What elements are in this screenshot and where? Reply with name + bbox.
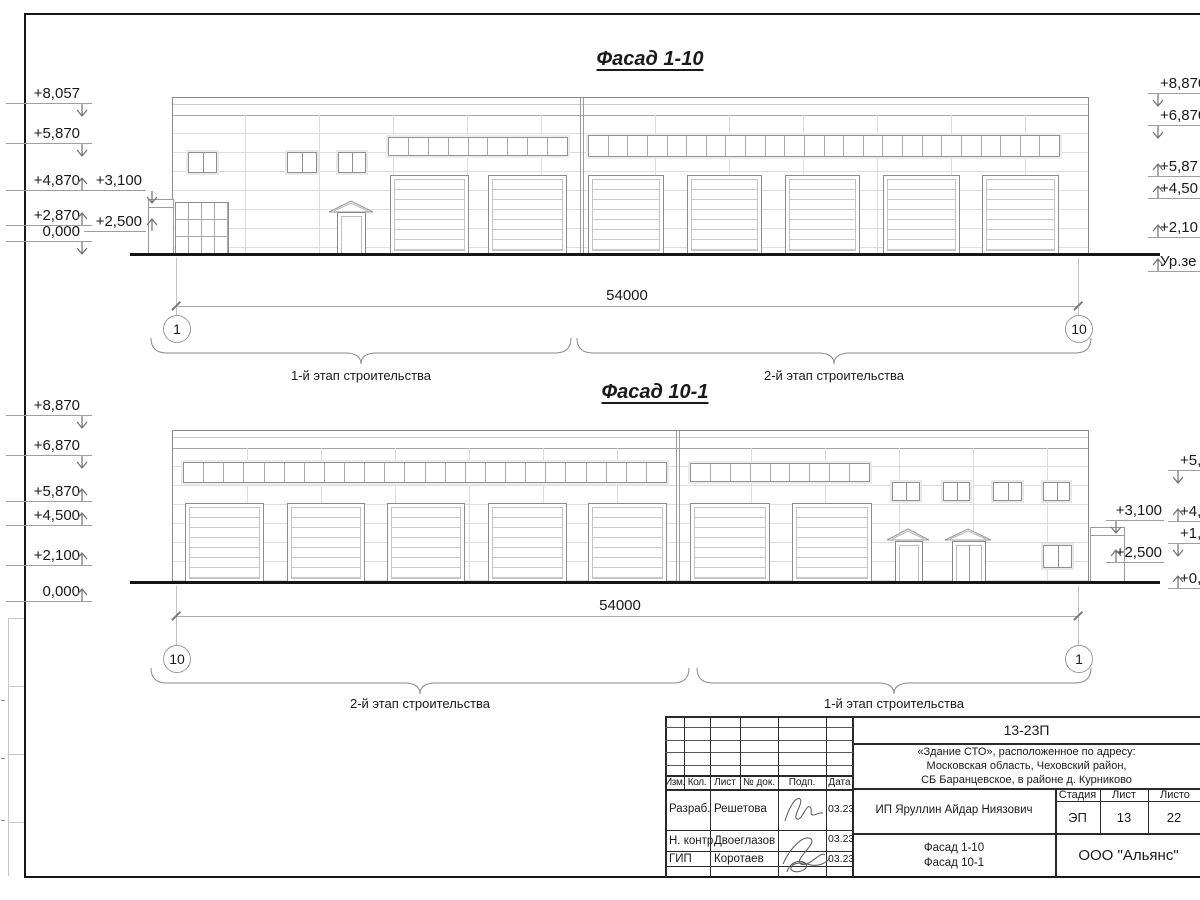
sheets-value: 22 — [1148, 810, 1200, 825]
window-pane — [1021, 136, 1041, 156]
gable-canopy-icon — [886, 527, 930, 541]
elevation-arrow-up-icon — [74, 588, 90, 601]
project-address-line2: Московская область, Чеховский район, — [853, 760, 1200, 772]
elevation-mark: +5,870 — [6, 484, 92, 502]
elevation-mark: +8,870 — [6, 398, 92, 416]
elevation-arrow-down-icon — [74, 242, 90, 255]
elevation-mark: +4,50 — [1148, 181, 1200, 199]
elevation-value: +2,500 — [84, 214, 146, 232]
garage-door — [883, 175, 960, 255]
window-pane — [305, 463, 325, 482]
window-pane — [486, 463, 506, 482]
elevation-mark: +2,500 — [1106, 545, 1164, 563]
window-pane — [746, 136, 766, 156]
window-pane — [526, 463, 546, 482]
elevation-value: +8,057 — [6, 86, 92, 104]
garage-door — [785, 175, 860, 255]
elevation-arrow-up-icon — [74, 512, 90, 525]
elevation-arrow-up-icon — [74, 552, 90, 565]
window-pane — [942, 136, 962, 156]
project-address-line1: «Здание СТО», расположенное по адресу: — [853, 746, 1200, 758]
sheet-label: Лист — [1100, 789, 1148, 801]
window-pane — [668, 136, 688, 156]
elevation-mark: +6,870 — [1148, 108, 1200, 126]
window-pane — [528, 138, 548, 155]
ribbon-window — [588, 135, 1060, 157]
window-pane — [883, 136, 903, 156]
title-block: Изм. Кол. Лист № док. Подп. Дата Разраб.… — [665, 716, 1200, 878]
row-role: ГИП — [669, 853, 692, 865]
parapet-band — [173, 98, 1088, 116]
garage-door — [488, 503, 567, 583]
elevation-mark: 0,000 — [6, 224, 92, 242]
garage-door — [588, 175, 664, 255]
elevation-mark: +2,100 — [6, 548, 92, 566]
stage-division-line — [679, 431, 680, 583]
elevation-arrow-up-icon — [144, 218, 160, 231]
window-pane — [345, 463, 365, 482]
window-pane — [707, 136, 727, 156]
drawing-name-line1: Фасад 1-10 — [853, 842, 1055, 854]
frame-top-line — [24, 13, 1200, 15]
elevation-mark: +2,500 — [84, 214, 146, 232]
elevation-value: +8,870 — [6, 398, 92, 416]
ground-line — [130, 253, 1160, 256]
window-pane — [850, 464, 869, 481]
elevation-arrow-down-icon — [74, 416, 90, 429]
window-pane — [771, 464, 791, 481]
row-name: Решетова — [714, 803, 767, 815]
window — [993, 482, 1022, 501]
ground-line — [130, 581, 1160, 584]
window-pane — [184, 463, 204, 482]
window-pane — [648, 136, 668, 156]
window-pane — [864, 136, 884, 156]
elevation-arrow-down-icon — [74, 104, 90, 117]
window-pane — [365, 463, 385, 482]
window-pane — [466, 463, 486, 482]
elevation-mark: +5,870 — [6, 126, 92, 144]
stage-division-line — [580, 98, 581, 255]
elevation-value: +8,870 — [1148, 76, 1200, 94]
garage-door — [982, 175, 1059, 255]
stage-label: 1-й этап строительства — [261, 368, 461, 383]
window-pane — [962, 136, 982, 156]
elevation-value: +3,100 — [84, 173, 146, 191]
window-pane — [587, 463, 607, 482]
col-list: Лист — [710, 777, 740, 788]
elevation-arrow-down-icon — [1150, 94, 1166, 107]
elevation-arrow-down-icon — [74, 456, 90, 469]
elevation-arrow-up-icon — [1170, 508, 1186, 521]
window-pane — [844, 136, 864, 156]
garage-door — [387, 503, 465, 583]
window-pane — [766, 136, 786, 156]
window-pane — [731, 464, 751, 481]
window-pane — [982, 136, 1002, 156]
elevation-arrow-up-icon — [74, 488, 90, 501]
row-name: Двоеглазов — [714, 835, 775, 847]
window-pane — [449, 138, 469, 155]
row-role: Н. контр. — [669, 835, 716, 847]
stage-value: ЭП — [1055, 810, 1100, 825]
signature-icon — [779, 791, 825, 829]
facade-10-1-title: Фасад 10-1 — [525, 381, 785, 404]
col-data: Дата — [826, 777, 853, 788]
elevation-value: +6,870 — [1148, 108, 1200, 126]
window-pane — [389, 138, 409, 155]
elevation-mark: +2,10 — [1148, 220, 1200, 238]
gable-canopy-icon — [944, 527, 992, 541]
window-pane — [711, 464, 731, 481]
garage-door — [390, 175, 469, 255]
garage-door — [792, 503, 872, 583]
stage-division-line — [583, 98, 584, 255]
dimension-value: 54000 — [555, 597, 685, 614]
elevation-arrow-down-icon — [1170, 544, 1186, 557]
elevation-arrow-up-icon — [1150, 185, 1166, 198]
stage-brace — [576, 336, 1092, 366]
window-pane — [385, 463, 405, 482]
panel-joint — [245, 115, 246, 255]
elevation-value: +5,8 — [1168, 453, 1200, 471]
elevation-value: 0,000 — [6, 224, 92, 242]
window-pane — [589, 136, 609, 156]
window-pane — [607, 463, 627, 482]
ribbon-window — [388, 137, 568, 156]
window-pane — [825, 136, 845, 156]
elevation-mark: +1,8 — [1168, 526, 1200, 544]
window-pane — [429, 138, 449, 155]
entrance-door — [337, 212, 366, 255]
window-pane — [1001, 136, 1021, 156]
window-pane — [628, 136, 648, 156]
window-pane — [609, 136, 629, 156]
entrance-door — [895, 541, 923, 583]
elevation-mark: +0,8 — [1168, 571, 1200, 589]
ribbon-window — [183, 462, 667, 483]
window-pane — [566, 463, 586, 482]
elevation-mark: +5,87 — [1148, 159, 1200, 177]
window-pane — [1040, 136, 1059, 156]
panel-joint — [319, 115, 320, 255]
sheets-label: Листо — [1160, 789, 1190, 801]
stage-brace — [150, 666, 690, 696]
window-pane — [244, 463, 264, 482]
stage-label: 2-й этап строительства — [320, 696, 520, 711]
elevation-mark: +4,8 — [1168, 504, 1200, 522]
window-pane — [647, 463, 666, 482]
window-pane — [426, 463, 446, 482]
elevation-mark: 0,000 — [6, 584, 92, 602]
stage-label: Стадия — [1055, 789, 1100, 801]
extension-line — [1078, 258, 1079, 316]
window-pane — [204, 463, 224, 482]
elevation-mark: +5,8 — [1168, 453, 1200, 471]
window-pane — [265, 463, 285, 482]
window-pane — [488, 138, 508, 155]
double-entrance-door — [952, 541, 986, 583]
window — [188, 152, 217, 173]
doc-code: 13-23П — [853, 722, 1200, 738]
garage-door — [185, 503, 264, 583]
parapet-band — [173, 431, 1088, 449]
elevation-mark: +3,100 — [1106, 503, 1164, 521]
drawing-name-line2: Фасад 10-1 — [853, 857, 1055, 869]
window — [338, 152, 366, 173]
window-pane — [506, 463, 526, 482]
garage-door — [588, 503, 667, 583]
window-pane — [546, 463, 566, 482]
project-address-line3: СБ Баранцевское, в районе д. Курниково — [853, 774, 1200, 786]
client-name: ИП Яруллин Айдар Ниязович — [853, 804, 1055, 816]
window-pane — [508, 138, 528, 155]
elevation-arrow-up-icon — [1150, 163, 1166, 176]
elevation-arrow-down-icon — [1150, 126, 1166, 139]
window-pane — [325, 463, 345, 482]
elevation-mark: +4,500 — [6, 508, 92, 526]
elevation-arrow-up-icon — [1150, 258, 1166, 271]
elevation-mark: Ур.зе — [1148, 254, 1200, 272]
col-izm: Изм. — [665, 777, 684, 788]
stage-label: 1-й этап строительства — [794, 696, 994, 711]
elevation-arrow-up-icon — [1150, 224, 1166, 237]
elevation-arrow-down-icon — [144, 191, 160, 204]
window-pane — [691, 464, 711, 481]
architectural-drawing-sheet: Фасад 1-10 54000 1 10 — [0, 0, 1200, 900]
stage-division-line — [676, 431, 677, 583]
elevation-value: +6,870 — [6, 438, 92, 456]
window-pane — [548, 138, 567, 155]
col-kol: Кол. — [684, 777, 710, 788]
garage-door — [488, 175, 567, 255]
window — [943, 482, 970, 501]
elevation-mark: +8,870 — [1148, 76, 1200, 94]
window-pane — [627, 463, 647, 482]
row-name: Коротаев — [714, 853, 764, 865]
gable-canopy-icon — [328, 199, 374, 213]
garage-door — [287, 503, 365, 583]
elevation-mark: +8,057 — [6, 86, 92, 104]
window-pane — [446, 463, 466, 482]
facade-1-10-title: Фасад 1-10 — [520, 48, 780, 71]
extension-line — [176, 258, 177, 316]
window-pane — [687, 136, 707, 156]
elevation-mark: +4,870 — [6, 173, 92, 191]
window-pane — [469, 138, 489, 155]
window-pane — [903, 136, 923, 156]
window — [1043, 482, 1070, 501]
window-pane — [805, 136, 825, 156]
window-pane — [810, 464, 830, 481]
window-pane — [790, 464, 810, 481]
dimension-line — [176, 306, 1078, 307]
window-pane — [405, 463, 425, 482]
garage-door — [690, 503, 770, 583]
dimension-line — [176, 616, 1078, 617]
elevation-arrow-down-icon — [1108, 521, 1124, 534]
storefront-glazing — [175, 202, 229, 255]
elevation-arrow-up-icon — [1170, 575, 1186, 588]
stage-brace — [150, 336, 572, 366]
col-podp: Подп. — [778, 777, 826, 788]
elevation-arrow-down-icon — [74, 144, 90, 157]
elevation-mark: +6,870 — [6, 438, 92, 456]
elevation-value: +1,8 — [1168, 526, 1200, 544]
dimension-value: 54000 — [562, 287, 692, 304]
row-role: Разраб. — [669, 803, 710, 815]
window-pane — [285, 463, 305, 482]
window-pane — [923, 136, 943, 156]
elevation-mark: +3,100 — [84, 173, 146, 191]
garage-door — [687, 175, 762, 255]
elevation-arrow-up-icon — [1108, 549, 1124, 562]
company-name: ООО "Альянс" — [1057, 847, 1200, 864]
elevation-arrow-down-icon — [1170, 471, 1186, 484]
window — [892, 482, 920, 501]
window-pane — [830, 464, 850, 481]
window-pane — [409, 138, 429, 155]
window-pane — [224, 463, 244, 482]
window-pane — [726, 136, 746, 156]
sheet-value: 13 — [1100, 810, 1148, 825]
window — [287, 152, 317, 173]
elevation-value: +3,100 — [1106, 503, 1164, 521]
window-pane — [785, 136, 805, 156]
row-date: 03.23 — [828, 803, 854, 815]
col-ndok: № док. — [740, 777, 778, 788]
ribbon-window — [690, 463, 870, 482]
stage-brace — [696, 666, 1092, 696]
window-pane — [751, 464, 771, 481]
elevation-value: +5,870 — [6, 126, 92, 144]
window — [1043, 545, 1072, 568]
signature-icon — [775, 830, 833, 876]
